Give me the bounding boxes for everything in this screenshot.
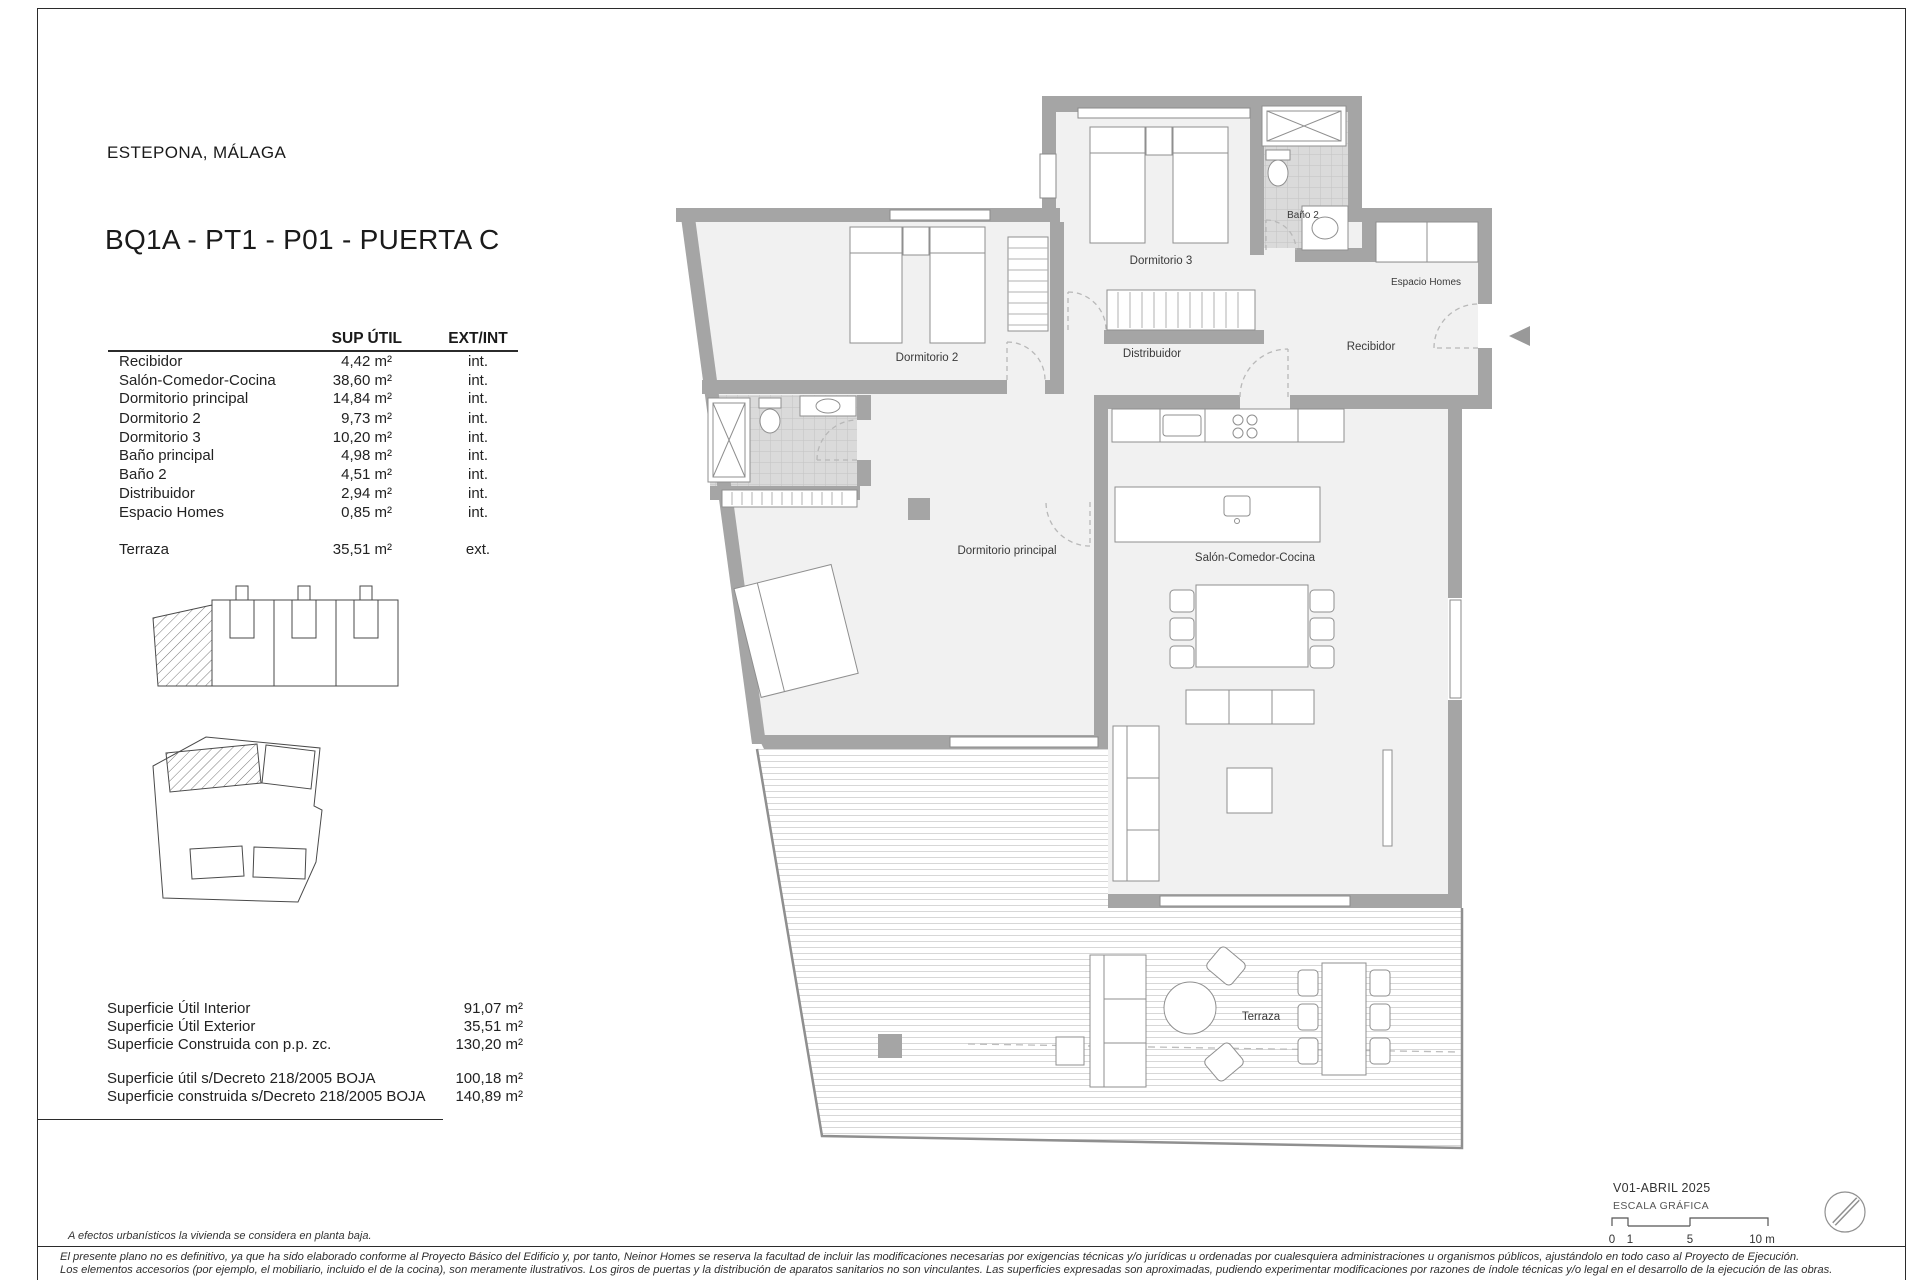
window bbox=[1078, 108, 1250, 118]
site-plan-diagram bbox=[153, 737, 322, 902]
room-label-dormitorio2: Dormitorio 2 bbox=[896, 352, 959, 364]
kitchen-island bbox=[1115, 487, 1320, 542]
scale-tick-label: 0 bbox=[1609, 1234, 1615, 1246]
entry-door-opening bbox=[1478, 304, 1492, 348]
scale-tick-label: 1 bbox=[1627, 1234, 1633, 1246]
wardrobe bbox=[1008, 237, 1048, 331]
plan-sheet: ESTEPONA, MÁLAGA BQ1A - PT1 - P01 - PUER… bbox=[0, 0, 1920, 1280]
window bbox=[1450, 600, 1461, 698]
sideboard bbox=[1186, 690, 1314, 724]
room-label-salon: Salón-Comedor-Cocina bbox=[1195, 552, 1316, 564]
scale-bar: 0 1 5 10 m bbox=[1609, 1218, 1775, 1246]
compass-icon bbox=[1825, 1192, 1865, 1232]
scale-tick-label: 5 bbox=[1687, 1234, 1693, 1246]
floor-plan: Dormitorio 2 Dormitorio 3 Baño 2 Espacio… bbox=[0, 0, 1920, 1280]
terrace-slider-window bbox=[1160, 896, 1350, 906]
kitchen-counter bbox=[1112, 409, 1344, 442]
window bbox=[1040, 154, 1056, 198]
window bbox=[890, 210, 990, 220]
tv-unit bbox=[1383, 750, 1392, 846]
scale-tick-label: 10 m bbox=[1749, 1234, 1775, 1246]
room-label-recibidor: Recibidor bbox=[1347, 341, 1396, 353]
shower bbox=[1262, 106, 1346, 146]
utility-closet bbox=[1376, 222, 1478, 262]
terrace-post bbox=[878, 1034, 902, 1058]
room-label-espacio-homes: Espacio Homes bbox=[1391, 277, 1461, 288]
outdoor-dining-table bbox=[1298, 963, 1390, 1075]
window bbox=[950, 737, 1098, 747]
coffee-table bbox=[1227, 768, 1272, 813]
sofa bbox=[1113, 726, 1159, 881]
room-label-distribuidor: Distribuidor bbox=[1123, 348, 1181, 360]
room-label-dormitorio3: Dormitorio 3 bbox=[1130, 255, 1193, 267]
toilet bbox=[759, 398, 781, 433]
wardrobe bbox=[722, 490, 857, 507]
sink bbox=[800, 396, 856, 416]
shower bbox=[708, 398, 750, 482]
room-label-terraza: Terraza bbox=[1242, 1011, 1281, 1023]
wardrobe bbox=[1107, 290, 1255, 330]
room-label-bano2: Baño 2 bbox=[1287, 210, 1319, 221]
building-strip-diagram bbox=[153, 586, 398, 686]
room-label-dormitorio-principal: Dormitorio principal bbox=[957, 545, 1056, 557]
entry-arrow-icon bbox=[1509, 326, 1530, 346]
toilet bbox=[1266, 150, 1290, 186]
